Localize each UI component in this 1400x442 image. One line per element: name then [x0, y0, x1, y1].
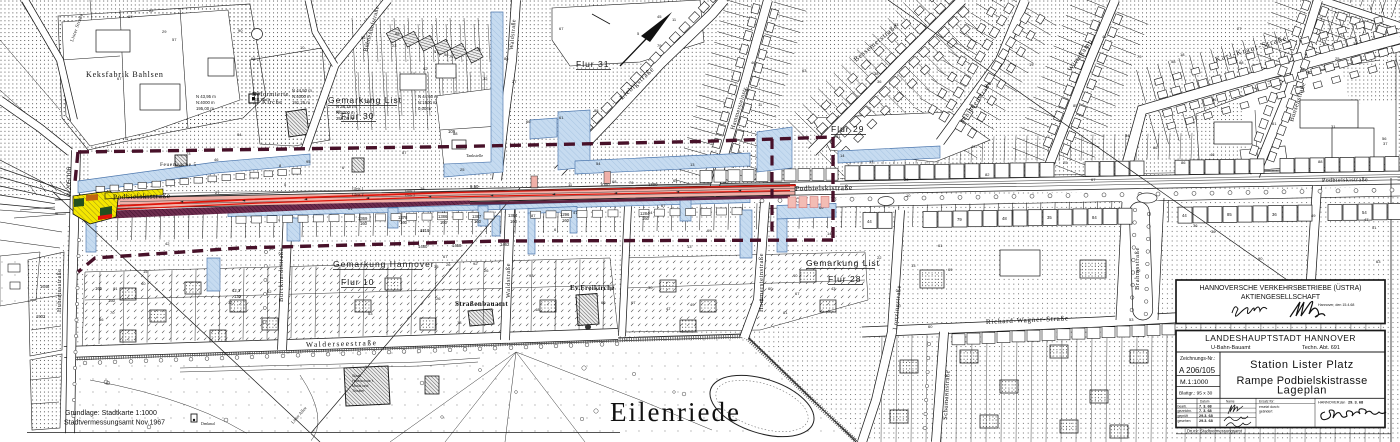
svg-text:248,75 m: 248,75 m — [252, 97, 270, 102]
svg-text:13: 13 — [687, 244, 692, 249]
svg-text:67: 67 — [559, 26, 564, 31]
svg-text:18: 18 — [1180, 52, 1185, 57]
svg-text:56: 56 — [1212, 97, 1217, 102]
svg-text:32: 32 — [483, 76, 488, 81]
svg-text:22: 22 — [477, 47, 482, 52]
svg-text:160: 160 — [108, 298, 116, 303]
svg-text:63: 63 — [1376, 259, 1381, 264]
svg-text:165: 165 — [95, 286, 103, 291]
svg-text:Zeichnungs-Nr.:: Zeichnungs-Nr.: — [1180, 356, 1215, 362]
svg-text:30: 30 — [648, 285, 653, 290]
svg-text:92: 92 — [473, 261, 478, 266]
svg-text:Datum: Datum — [1200, 400, 1210, 404]
svg-text:61: 61 — [1272, 121, 1277, 126]
svg-text:17: 17 — [869, 159, 874, 164]
svg-text:40: 40 — [141, 281, 146, 286]
svg-text:Feuerwache 5: Feuerwache 5 — [160, 162, 197, 168]
svg-text:N 44,60 m: N 44,60 m — [418, 94, 438, 99]
svg-text:79: 79 — [657, 43, 662, 48]
svg-text:88: 88 — [395, 31, 400, 36]
svg-text:81: 81 — [783, 310, 788, 315]
svg-text:82: 82 — [985, 172, 990, 177]
svg-text:N:3000 m: N:3000 m — [336, 110, 355, 115]
svg-text:1300: 1300 — [648, 182, 658, 187]
svg-text:43: 43 — [831, 286, 836, 291]
svg-text:Eilenriede: Eilenriede — [610, 397, 741, 427]
svg-text:1462: 1462 — [500, 242, 510, 247]
svg-text:bearb.: bearb. — [1178, 404, 1188, 408]
svg-text:47: 47 — [1364, 217, 1369, 222]
svg-text:81: 81 — [113, 286, 118, 291]
svg-text:Podbielskistraße: Podbielskistraße — [113, 191, 171, 202]
svg-text:130: 130 — [234, 294, 242, 299]
svg-text:Name: Name — [1226, 400, 1235, 404]
svg-text:Burckhardtstraße: Burckhardtstraße — [278, 248, 285, 302]
svg-text:25: 25 — [1335, 56, 1340, 61]
svg-text:23: 23 — [392, 43, 397, 48]
svg-text:35: 35 — [434, 264, 439, 269]
svg-text:14: 14 — [648, 210, 653, 215]
svg-text:44: 44 — [867, 219, 872, 224]
svg-text:N:4000 m: N:4000 m — [196, 100, 215, 105]
svg-text:60: 60 — [768, 286, 773, 291]
svg-text:42: 42 — [165, 241, 170, 246]
svg-text:10: 10 — [793, 273, 798, 278]
svg-text:Denkmal: Denkmal — [201, 422, 215, 426]
svg-text:88: 88 — [594, 108, 599, 113]
svg-text:10: 10 — [906, 193, 911, 198]
svg-text:160: 160 — [562, 218, 570, 223]
svg-text:Theater: Theater — [352, 389, 365, 393]
svg-text:Station Lister Platz: Station Lister Platz — [1250, 359, 1354, 371]
svg-text:Gleis 2: Gleis 2 — [352, 192, 363, 197]
svg-text:N:4000 m: N:4000 m — [292, 94, 311, 99]
svg-text:A 206/105: A 206/105 — [1179, 366, 1216, 375]
svg-text:256,00 m: 256,00 m — [336, 116, 354, 121]
svg-text:63: 63 — [802, 68, 807, 73]
svg-text:49: 49 — [690, 302, 695, 307]
svg-text:160: 160 — [642, 216, 650, 221]
svg-text:68: 68 — [251, 56, 256, 61]
svg-text:36: 36 — [1193, 223, 1198, 228]
svg-text:79: 79 — [957, 217, 962, 222]
svg-text:HANNOVER,: HANNOVER, — [1318, 401, 1341, 405]
svg-text:85: 85 — [1227, 212, 1232, 217]
svg-text:10: 10 — [300, 45, 305, 50]
svg-text:87: 87 — [402, 150, 407, 155]
svg-text:27: 27 — [1237, 26, 1242, 31]
svg-text:79: 79 — [1137, 54, 1142, 59]
svg-text:Straßenbauamt: Straßenbauamt — [455, 300, 508, 308]
svg-text:37: 37 — [1383, 141, 1388, 146]
svg-text:36: 36 — [1272, 212, 1277, 217]
svg-text:160: 160 — [440, 220, 448, 225]
svg-text:Stadtvermessungsamt Nov.1967: Stadtvermessungsamt Nov.1967 — [64, 420, 165, 427]
svg-text:67: 67 — [128, 14, 133, 19]
svg-text:54: 54 — [596, 161, 601, 166]
svg-text:54: 54 — [1362, 210, 1367, 215]
svg-text:109: 109 — [448, 129, 456, 134]
svg-text:61: 61 — [559, 115, 564, 120]
svg-text:9,50: 9,50 — [470, 184, 479, 189]
svg-text:160: 160 — [360, 221, 368, 226]
svg-text:19: 19 — [1029, 62, 1034, 67]
svg-text:geändert: geändert — [1259, 410, 1272, 414]
svg-text:N 38,15 m: N 38,15 m — [336, 104, 356, 109]
svg-text:68: 68 — [612, 179, 617, 184]
svg-text:AKTIENGESELLSCHAFT: AKTIENGESELLSCHAFT — [1241, 294, 1321, 301]
svg-text:Flur 10: Flur 10 — [341, 277, 374, 287]
svg-text:36: 36 — [877, 79, 882, 84]
svg-text:Flur 28: Flur 28 — [828, 274, 861, 284]
svg-text:0,00 m: 0,00 m — [418, 106, 432, 111]
svg-text:28: 28 — [420, 186, 425, 191]
svg-text:71: 71 — [449, 54, 454, 59]
svg-text:7. 3. 68: 7. 3. 68 — [1199, 404, 1212, 408]
svg-text:14: 14 — [840, 153, 845, 158]
svg-text:Keksfabrik Bahlsen: Keksfabrik Bahlsen — [86, 70, 164, 79]
svg-text:46: 46 — [214, 157, 219, 162]
svg-text:12,3: 12,3 — [232, 288, 241, 293]
svg-text:M.1:1000: M.1:1000 — [1180, 379, 1209, 386]
svg-text:29. 3. 68: 29. 3. 68 — [1348, 400, 1364, 405]
svg-text:46: 46 — [751, 60, 756, 65]
svg-text:1902: 1902 — [36, 314, 46, 319]
svg-text:61: 61 — [938, 243, 943, 248]
svg-text:160: 160 — [510, 219, 518, 224]
svg-text:Podbielskistraße: Podbielskistraße — [1322, 176, 1368, 184]
svg-text:HANNOVERSCHE VERKEHRSBETRIEBE: HANNOVERSCHE VERKEHRSBETRIEBE (ÜSTRA) — [1200, 284, 1362, 292]
svg-text:87: 87 — [531, 213, 536, 218]
svg-text:Ev.Freikirche: Ev.Freikirche — [570, 284, 615, 292]
svg-text:32: 32 — [228, 300, 233, 305]
svg-text:N 43,95 m: N 43,95 m — [196, 94, 216, 99]
svg-text:94: 94 — [237, 132, 242, 137]
svg-text:25: 25 — [460, 167, 465, 172]
svg-text:1000: 1000 — [600, 182, 610, 187]
svg-text:Grundlage: Stadtkarte 1:1000: Grundlage: Stadtkarte 1:1000 — [65, 410, 157, 417]
svg-text:36: 36 — [1353, 41, 1358, 46]
svg-text:48: 48 — [1002, 216, 1007, 221]
svg-text:Gleis 1: Gleis 1 — [352, 186, 363, 191]
svg-text:66: 66 — [1153, 145, 1158, 150]
svg-text:Walderseestraße: Walderseestraße — [306, 338, 378, 349]
svg-text:Blattgr.: 95 x 30: Blattgr.: 95 x 30 — [1179, 391, 1213, 397]
svg-text:93: 93 — [529, 273, 534, 278]
svg-text:Druck: Stadtvermessungsamt: Druck: Stadtvermessungsamt — [1187, 429, 1243, 434]
svg-text:7. 3. 68: 7. 3. 68 — [1199, 409, 1212, 413]
svg-text:35: 35 — [1047, 215, 1052, 220]
svg-text:74: 74 — [1340, 33, 1345, 38]
svg-text:40 m: 40 m — [252, 91, 262, 96]
svg-text:160: 160 — [400, 220, 408, 225]
svg-text:Gemarkung Hannover: Gemarkung Hannover — [333, 259, 435, 269]
svg-text:LANDESHAUPTSTADT HANNOVER: LANDESHAUPTSTADT HANNOVER — [1205, 333, 1356, 343]
svg-text:22: 22 — [149, 8, 154, 13]
svg-text:41: 41 — [1102, 34, 1107, 39]
svg-text:1648: 1648 — [40, 284, 50, 289]
svg-text:85: 85 — [1073, 103, 1078, 108]
svg-text:67: 67 — [795, 291, 800, 296]
svg-text:160: 160 — [474, 219, 482, 224]
svg-text:15: 15 — [143, 269, 148, 274]
svg-text:43: 43 — [971, 144, 976, 149]
svg-text:45: 45 — [657, 14, 662, 19]
svg-text:47: 47 — [573, 210, 578, 215]
svg-text:1384: 1384 — [508, 213, 518, 218]
svg-text:44: 44 — [1182, 213, 1187, 218]
svg-text:70: 70 — [110, 310, 115, 315]
svg-text:53: 53 — [1129, 317, 1134, 322]
svg-text:67: 67 — [661, 203, 666, 208]
svg-text:76: 76 — [629, 180, 634, 185]
svg-text:Tankstelle: Tankstelle — [466, 153, 483, 158]
svg-text:26: 26 — [484, 268, 489, 273]
svg-text:Hubertusstraße: Hubertusstraße — [56, 269, 63, 312]
svg-text:gezeichn.: gezeichn. — [1178, 409, 1193, 413]
svg-text:88: 88 — [1239, 60, 1244, 65]
svg-text:47: 47 — [420, 228, 425, 233]
svg-text:N 44,50 m: N 44,50 m — [292, 88, 312, 93]
svg-text:geprüft: geprüft — [1178, 414, 1189, 418]
svg-text:69: 69 — [948, 267, 953, 272]
svg-text:46: 46 — [1210, 152, 1215, 157]
svg-text:49: 49 — [1311, 213, 1316, 218]
svg-text:29: 29 — [904, 177, 909, 182]
svg-text:86: 86 — [504, 56, 509, 61]
svg-text:57: 57 — [172, 37, 177, 42]
svg-text:195,00 m: 195,00 m — [196, 106, 214, 111]
svg-text:Gemarkung List: Gemarkung List — [806, 258, 880, 268]
svg-text:29.3. 68: 29.3. 68 — [1199, 419, 1213, 423]
svg-text:U-Bahn-Bauamt: U-Bahn-Bauamt — [1211, 345, 1251, 351]
svg-text:Lageplan: Lageplan — [1277, 385, 1327, 397]
svg-text:Podbielskistraße: Podbielskistraße — [795, 183, 853, 193]
svg-text:27: 27 — [512, 79, 517, 84]
svg-text:ersetzt durch:: ersetzt durch: — [1259, 405, 1280, 409]
svg-text:84: 84 — [1092, 215, 1097, 220]
svg-text:Flur 29: Flur 29 — [831, 124, 864, 134]
svg-text:29.3. 68: 29.3. 68 — [1199, 414, 1213, 418]
svg-text:Waldstraße: Waldstraße — [505, 263, 512, 298]
svg-text:18: 18 — [457, 320, 462, 325]
svg-text:67: 67 — [631, 300, 636, 305]
svg-text:67: 67 — [443, 254, 448, 259]
svg-text:191,25 m: 191,25 m — [292, 100, 310, 105]
svg-text:Gleis 1: Gleis 1 — [405, 189, 415, 193]
svg-text:13: 13 — [911, 263, 916, 268]
svg-text:86: 86 — [99, 317, 104, 322]
svg-text:42: 42 — [423, 66, 428, 71]
svg-text:47: 47 — [666, 306, 671, 311]
svg-text:51: 51 — [1372, 225, 1377, 230]
svg-text:48: 48 — [535, 307, 540, 312]
svg-text:60: 60 — [928, 324, 933, 329]
svg-text:Musik und: Musik und — [352, 384, 368, 388]
svg-text:25: 25 — [1063, 160, 1068, 165]
svg-text:66: 66 — [526, 119, 531, 124]
svg-text:90: 90 — [238, 28, 243, 33]
svg-text:Ersatz für:: Ersatz für: — [1259, 400, 1275, 404]
svg-text:38: 38 — [874, 71, 879, 76]
svg-text:67: 67 — [1091, 177, 1096, 182]
svg-text:66: 66 — [601, 300, 606, 305]
svg-text:den: den — [1340, 401, 1346, 405]
svg-text:1296: 1296 — [560, 212, 570, 217]
svg-text:86: 86 — [1181, 160, 1186, 165]
svg-text:Hochschule f.: Hochschule f. — [352, 379, 374, 383]
svg-text:Brahmsstraße: Brahmsstraße — [1134, 247, 1141, 290]
svg-text:69: 69 — [707, 228, 712, 233]
svg-text:26: 26 — [436, 296, 441, 301]
svg-text:29: 29 — [162, 29, 167, 34]
svg-text:58: 58 — [1171, 59, 1176, 64]
svg-text:95: 95 — [306, 159, 311, 164]
svg-text:13: 13 — [690, 162, 695, 167]
svg-text:1386: 1386 — [438, 214, 448, 219]
svg-text:Hammersteinstraße: Hammersteinstraße — [758, 253, 765, 312]
svg-text:31: 31 — [1331, 124, 1336, 129]
svg-text:53: 53 — [368, 311, 373, 316]
svg-text:57: 57 — [434, 49, 439, 54]
svg-text:gesehen: gesehen — [1178, 419, 1191, 423]
svg-text:62: 62 — [267, 289, 272, 294]
svg-text:Flur 31: Flur 31 — [576, 59, 609, 69]
svg-text:Staatl.: Staatl. — [352, 374, 362, 378]
svg-text:Techn. Abt. 691: Techn. Abt. 691 — [1302, 345, 1340, 351]
svg-text:88: 88 — [1318, 159, 1323, 164]
svg-text:54: 54 — [1125, 133, 1130, 138]
svg-text:Gleis 2: Gleis 2 — [405, 194, 415, 198]
svg-text:64: 64 — [673, 178, 678, 183]
svg-text:Hannover, den 15.4.68: Hannover, den 15.4.68 — [1318, 303, 1354, 307]
svg-text:N:1500 m: N:1500 m — [418, 100, 437, 105]
svg-text:26: 26 — [446, 262, 451, 267]
svg-text:A 205/106: A 205/106 — [66, 166, 73, 196]
svg-text:1480: 1480 — [418, 244, 428, 249]
